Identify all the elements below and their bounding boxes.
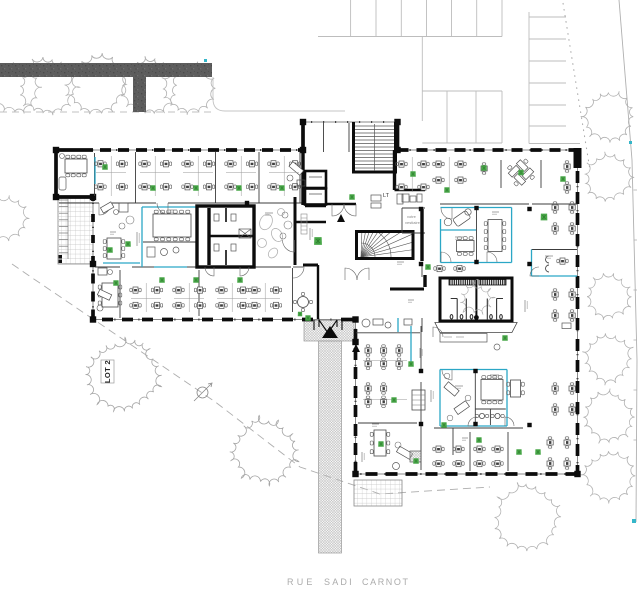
svg-text:SADI: SADI [324,577,354,587]
svg-text:LOT 2: LOT 2 [103,360,112,383]
svg-text:RUE: RUE [287,577,316,587]
svg-text:CARNOT: CARNOT [362,577,410,587]
svg-text:votre: votre [407,214,417,219]
svg-text:LT: LT [383,193,390,199]
svg-text:vestiaire: vestiaire [405,220,421,225]
